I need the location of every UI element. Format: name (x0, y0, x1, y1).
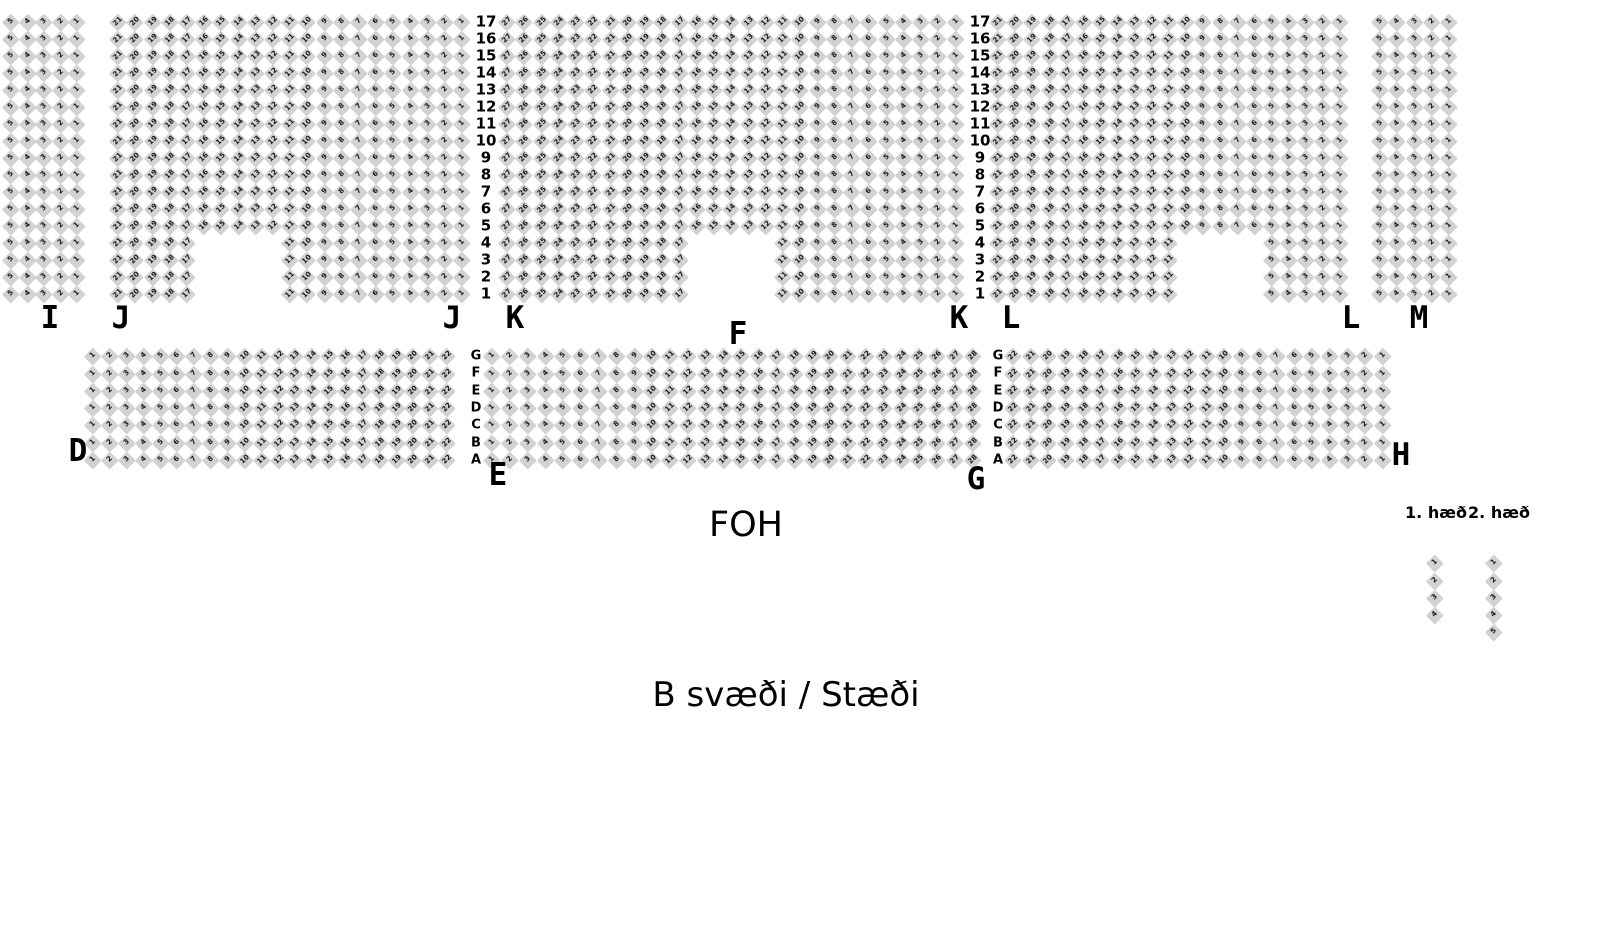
seat[interactable]: 6 (1246, 99, 1262, 115)
seat[interactable]: 1 (69, 65, 85, 81)
seat[interactable]: 7 (591, 434, 607, 450)
seat[interactable]: 22 (585, 133, 601, 149)
seat[interactable]: 14 (1146, 434, 1162, 450)
seat[interactable]: 13 (1127, 167, 1143, 183)
seat[interactable]: 6 (861, 116, 877, 132)
seat[interactable]: 16 (196, 218, 212, 234)
seat[interactable]: 9 (809, 48, 825, 64)
seat[interactable]: 6 (573, 365, 589, 381)
seat[interactable]: 8 (1251, 382, 1267, 398)
seat[interactable]: 12 (265, 133, 281, 149)
seat[interactable]: 19 (804, 348, 820, 364)
seat[interactable]: 11 (253, 434, 269, 450)
seat[interactable]: 17 (1058, 133, 1074, 149)
seat[interactable]: 5 (3, 252, 19, 268)
seat[interactable]: 9 (316, 133, 332, 149)
seat[interactable]: 3 (913, 167, 929, 183)
seat[interactable]: 22 (585, 201, 601, 217)
seat[interactable]: 7 (844, 99, 860, 115)
seat[interactable]: 18 (654, 65, 670, 81)
seat[interactable]: 16 (338, 382, 354, 398)
seat[interactable]: 7 (351, 184, 367, 200)
seat[interactable]: 5 (385, 150, 401, 166)
seat[interactable]: 5 (1372, 150, 1388, 166)
seat[interactable]: 21 (110, 14, 126, 30)
seat[interactable]: 15 (1128, 434, 1144, 450)
seat[interactable]: 15 (213, 184, 229, 200)
seat[interactable]: 3 (913, 99, 929, 115)
seat[interactable]: 2 (1423, 99, 1439, 115)
seat[interactable]: 21 (110, 48, 126, 64)
seat[interactable]: 7 (351, 252, 367, 268)
seat[interactable]: 11 (282, 269, 298, 285)
seat[interactable]: 12 (758, 201, 774, 217)
seat[interactable]: 13 (1127, 150, 1143, 166)
seat[interactable]: 17 (179, 48, 195, 64)
seat[interactable]: 5 (3, 286, 19, 302)
seat[interactable]: 22 (1005, 417, 1021, 433)
seat[interactable]: 18 (161, 167, 177, 183)
seat[interactable]: 20 (127, 133, 143, 149)
seat[interactable]: 5 (385, 133, 401, 149)
seat[interactable]: 5 (1263, 65, 1279, 81)
seat[interactable]: 12 (1144, 133, 1160, 149)
seat[interactable]: 27 (499, 65, 515, 81)
seat[interactable]: 13 (740, 150, 756, 166)
seat[interactable]: 17 (1058, 269, 1074, 285)
seat[interactable]: 1 (947, 184, 963, 200)
seat[interactable]: 19 (144, 48, 160, 64)
seat[interactable]: 19 (637, 150, 653, 166)
seat[interactable]: 11 (1161, 252, 1177, 268)
seat[interactable]: 19 (388, 382, 404, 398)
seat[interactable]: 2 (102, 434, 118, 450)
seat[interactable]: 2 (1423, 184, 1439, 200)
seat[interactable]: 11 (662, 348, 678, 364)
seat[interactable]: 5 (385, 201, 401, 217)
seat[interactable]: 14 (1109, 133, 1125, 149)
seat[interactable]: 26 (929, 434, 945, 450)
seat[interactable]: 24 (551, 201, 567, 217)
seat[interactable]: 15 (321, 434, 337, 450)
seat[interactable]: 5 (385, 65, 401, 81)
seat[interactable]: 19 (388, 400, 404, 416)
seat[interactable]: 20 (405, 348, 421, 364)
seat[interactable]: 10 (236, 382, 252, 398)
seat[interactable]: 16 (689, 82, 705, 98)
seat[interactable]: 4 (19, 252, 35, 268)
seat[interactable]: 5 (1263, 184, 1279, 200)
seat[interactable]: 4 (1389, 286, 1405, 302)
seat[interactable]: 3 (1406, 14, 1422, 30)
seat[interactable]: 5 (3, 82, 19, 98)
seat[interactable]: 15 (1092, 201, 1108, 217)
seat[interactable]: 20 (1040, 452, 1056, 468)
seat[interactable]: 14 (230, 201, 246, 217)
seat[interactable]: 3 (913, 65, 929, 81)
seat[interactable]: 8 (333, 48, 349, 64)
seat[interactable]: 3 (1298, 65, 1314, 81)
seat[interactable]: 18 (1041, 286, 1057, 302)
seat[interactable]: 5 (3, 48, 19, 64)
seat[interactable]: 23 (568, 133, 584, 149)
seat[interactable]: 1 (947, 48, 963, 64)
seat[interactable]: 24 (893, 382, 909, 398)
seat[interactable]: 2 (502, 365, 518, 381)
seat[interactable]: 17 (179, 31, 195, 47)
seat[interactable]: 17 (179, 65, 195, 81)
seat[interactable]: 2 (1423, 65, 1439, 81)
seat[interactable]: 12 (1144, 269, 1160, 285)
seat[interactable]: 20 (1040, 382, 1056, 398)
seat[interactable]: 7 (1229, 218, 1245, 234)
seat[interactable]: 21 (422, 417, 438, 433)
seat[interactable]: 12 (270, 417, 286, 433)
seat[interactable]: 27 (947, 365, 963, 381)
seat[interactable]: 14 (1146, 417, 1162, 433)
seat[interactable]: 23 (875, 452, 891, 468)
seat[interactable]: 1 (454, 48, 470, 64)
seat[interactable]: 26 (516, 184, 532, 200)
seat[interactable]: 24 (551, 269, 567, 285)
seat[interactable]: 4 (19, 235, 35, 251)
seat[interactable]: 19 (637, 133, 653, 149)
seat[interactable]: 25 (533, 235, 549, 251)
seat[interactable]: 10 (1216, 400, 1232, 416)
seat[interactable]: 10 (792, 116, 808, 132)
seat[interactable]: 14 (1146, 365, 1162, 381)
seat[interactable]: 23 (568, 82, 584, 98)
seat[interactable]: 3 (1298, 14, 1314, 30)
seat[interactable]: 4 (1322, 365, 1338, 381)
seat[interactable]: 2 (930, 14, 946, 30)
seat[interactable]: 2 (437, 31, 453, 47)
seat[interactable]: 1 (1441, 286, 1457, 302)
seat[interactable]: 2 (102, 382, 118, 398)
seat[interactable]: 6 (368, 269, 384, 285)
seat[interactable]: 2 (1315, 133, 1331, 149)
seat[interactable]: 18 (371, 434, 387, 450)
seat[interactable]: 1 (69, 48, 85, 64)
seat[interactable]: 14 (304, 382, 320, 398)
seat[interactable]: 17 (1093, 382, 1109, 398)
seat[interactable]: 1 (454, 235, 470, 251)
seat[interactable]: 7 (1229, 133, 1245, 149)
seat[interactable]: 14 (723, 116, 739, 132)
seat[interactable]: 28 (964, 417, 980, 433)
seat[interactable]: 9 (809, 116, 825, 132)
seat[interactable]: 15 (733, 400, 749, 416)
seat[interactable]: 14 (723, 31, 739, 47)
seat[interactable]: 1 (1441, 99, 1457, 115)
seat[interactable]: 6 (368, 150, 384, 166)
seat[interactable]: 2 (1315, 269, 1331, 285)
seat[interactable]: 10 (1178, 48, 1194, 64)
seat[interactable]: 20 (1007, 82, 1023, 98)
seat[interactable]: 10 (299, 31, 315, 47)
seat[interactable]: 20 (822, 452, 838, 468)
seat[interactable]: 21 (110, 99, 126, 115)
seat[interactable]: 25 (533, 286, 549, 302)
seat[interactable]: 1 (1332, 150, 1348, 166)
seat[interactable]: 4 (19, 65, 35, 81)
seat[interactable]: 2 (437, 150, 453, 166)
seat[interactable]: 6 (1246, 167, 1262, 183)
seat[interactable]: 17 (671, 235, 687, 251)
seat[interactable]: 1 (85, 382, 101, 398)
seat[interactable]: 5 (1263, 150, 1279, 166)
seat[interactable]: 19 (388, 434, 404, 450)
seat[interactable]: 15 (1092, 252, 1108, 268)
seat[interactable]: 7 (591, 417, 607, 433)
seat[interactable]: 3 (1298, 201, 1314, 217)
seat[interactable]: 1 (1332, 31, 1348, 47)
seat[interactable]: 19 (804, 382, 820, 398)
seat[interactable]: 9 (626, 417, 642, 433)
seat[interactable]: 6 (169, 452, 185, 468)
seat[interactable]: 7 (1269, 365, 1285, 381)
seat[interactable]: 10 (644, 365, 660, 381)
seat[interactable]: 16 (1075, 99, 1091, 115)
seat[interactable]: 11 (775, 65, 791, 81)
seat[interactable]: 21 (110, 116, 126, 132)
seat[interactable]: 4 (1322, 452, 1338, 468)
seat[interactable]: 4 (19, 201, 35, 217)
seat[interactable]: 11 (662, 452, 678, 468)
seat[interactable]: 20 (1007, 48, 1023, 64)
seat[interactable]: 4 (402, 82, 418, 98)
seat[interactable]: 4 (19, 286, 35, 302)
seat[interactable]: 9 (316, 14, 332, 30)
seat[interactable]: 20 (405, 382, 421, 398)
seat[interactable]: 9 (1234, 452, 1250, 468)
seat[interactable]: 9 (1195, 184, 1211, 200)
seat[interactable]: 20 (822, 382, 838, 398)
seat[interactable]: 14 (304, 348, 320, 364)
seat[interactable]: 18 (161, 218, 177, 234)
seat[interactable]: 5 (1304, 365, 1320, 381)
seat[interactable]: 8 (333, 116, 349, 132)
seat[interactable]: 5 (1263, 48, 1279, 64)
seat[interactable]: 23 (568, 252, 584, 268)
seat[interactable]: 14 (304, 434, 320, 450)
seat[interactable]: 11 (775, 269, 791, 285)
seat[interactable]: 15 (733, 452, 749, 468)
seat[interactable]: 19 (1024, 48, 1040, 64)
seat[interactable]: 10 (792, 167, 808, 183)
seat[interactable]: 18 (161, 14, 177, 30)
seat[interactable]: 9 (626, 382, 642, 398)
seat[interactable]: 15 (1092, 14, 1108, 30)
seat[interactable]: 5 (555, 400, 571, 416)
seat[interactable]: 6 (1286, 382, 1302, 398)
seat[interactable]: 27 (499, 82, 515, 98)
seat[interactable]: 17 (1058, 184, 1074, 200)
seat[interactable]: 17 (671, 116, 687, 132)
seat[interactable]: 13 (1127, 65, 1143, 81)
seat[interactable]: 13 (740, 133, 756, 149)
seat[interactable]: 22 (585, 99, 601, 115)
seat[interactable]: 4 (896, 116, 912, 132)
seat[interactable]: 10 (1216, 417, 1232, 433)
seat[interactable]: 5 (385, 286, 401, 302)
seat[interactable]: 14 (1109, 116, 1125, 132)
seat[interactable]: 22 (439, 348, 455, 364)
seat[interactable]: 3 (419, 252, 435, 268)
seat[interactable]: 10 (1178, 82, 1194, 98)
seat[interactable]: 9 (316, 48, 332, 64)
seat[interactable]: 1 (947, 218, 963, 234)
seat[interactable]: 5 (1263, 99, 1279, 115)
seat[interactable]: 1 (947, 235, 963, 251)
seat[interactable]: 5 (3, 218, 19, 234)
seat[interactable]: 14 (723, 167, 739, 183)
seat[interactable]: 4 (537, 382, 553, 398)
seat[interactable]: 12 (1181, 348, 1197, 364)
seat[interactable]: 11 (1161, 31, 1177, 47)
seat[interactable]: 21 (990, 184, 1006, 200)
seat[interactable]: 6 (861, 184, 877, 200)
seat[interactable]: 8 (1251, 452, 1267, 468)
seat[interactable]: 18 (161, 269, 177, 285)
seat[interactable]: 14 (723, 201, 739, 217)
seat[interactable]: 23 (875, 365, 891, 381)
seat[interactable]: 21 (840, 452, 856, 468)
seat[interactable]: 1 (947, 201, 963, 217)
seat[interactable]: 9 (809, 150, 825, 166)
seat[interactable]: 11 (282, 201, 298, 217)
seat[interactable]: 9 (626, 400, 642, 416)
seat[interactable]: 8 (333, 99, 349, 115)
seat[interactable]: 12 (680, 417, 696, 433)
seat[interactable]: 7 (591, 382, 607, 398)
seat[interactable]: 3 (419, 133, 435, 149)
seat[interactable]: 13 (697, 452, 713, 468)
seat[interactable]: 5 (1263, 286, 1279, 302)
seat[interactable]: 1 (454, 31, 470, 47)
seat[interactable]: 5 (152, 417, 168, 433)
seat[interactable]: 2 (102, 348, 118, 364)
seat[interactable]: 1 (85, 400, 101, 416)
seat[interactable]: 22 (585, 82, 601, 98)
seat[interactable]: 2 (102, 417, 118, 433)
seat[interactable]: 20 (620, 286, 636, 302)
seat[interactable]: 20 (620, 252, 636, 268)
seat[interactable]: 3 (36, 252, 52, 268)
seat[interactable]: 9 (1234, 434, 1250, 450)
seat[interactable]: 18 (654, 286, 670, 302)
seat[interactable]: 4 (1280, 201, 1296, 217)
seat[interactable]: 20 (127, 116, 143, 132)
seat[interactable]: 11 (1198, 452, 1214, 468)
seat[interactable]: 2 (1315, 218, 1331, 234)
seat[interactable]: 15 (733, 417, 749, 433)
seat[interactable]: 1 (69, 116, 85, 132)
seat[interactable]: 4 (135, 382, 151, 398)
seat[interactable]: 10 (792, 201, 808, 217)
seat[interactable]: 12 (270, 434, 286, 450)
seat[interactable]: 24 (551, 48, 567, 64)
seat[interactable]: 13 (697, 382, 713, 398)
seat[interactable]: 21 (110, 167, 126, 183)
seat[interactable]: 5 (1372, 286, 1388, 302)
seat[interactable]: 1 (1441, 269, 1457, 285)
seat[interactable]: 20 (405, 400, 421, 416)
seat[interactable]: 4 (1280, 150, 1296, 166)
seat[interactable]: 2 (1315, 252, 1331, 268)
seat[interactable]: 3 (913, 133, 929, 149)
seat[interactable]: 15 (706, 150, 722, 166)
seat[interactable]: 12 (270, 452, 286, 468)
seat[interactable]: 6 (368, 31, 384, 47)
seat[interactable]: 2 (502, 348, 518, 364)
seat[interactable]: 19 (804, 365, 820, 381)
seat[interactable]: 20 (620, 235, 636, 251)
seat[interactable]: 8 (827, 201, 843, 217)
seat[interactable]: 6 (1246, 201, 1262, 217)
seat[interactable]: 20 (822, 417, 838, 433)
seat[interactable]: 11 (1161, 184, 1177, 200)
seat[interactable]: 24 (551, 14, 567, 30)
seat[interactable]: 7 (351, 99, 367, 115)
seat[interactable]: 21 (990, 269, 1006, 285)
seat[interactable]: 13 (740, 48, 756, 64)
seat[interactable]: 13 (247, 48, 263, 64)
seat[interactable]: 4 (1322, 348, 1338, 364)
seat[interactable]: 14 (715, 417, 731, 433)
seat[interactable]: 10 (1178, 218, 1194, 234)
seat[interactable]: 6 (368, 116, 384, 132)
seat[interactable]: 4 (19, 82, 35, 98)
seat[interactable]: 14 (723, 14, 739, 30)
seat[interactable]: 15 (1128, 382, 1144, 398)
seat[interactable]: 3 (1406, 184, 1422, 200)
seat[interactable]: 1 (1441, 235, 1457, 251)
seat[interactable]: 2 (437, 201, 453, 217)
seat[interactable]: 14 (715, 365, 731, 381)
seat[interactable]: 3 (1406, 218, 1422, 234)
seat[interactable]: 20 (822, 348, 838, 364)
seat[interactable]: 8 (1251, 417, 1267, 433)
seat[interactable]: 14 (230, 116, 246, 132)
seat[interactable]: 10 (1178, 14, 1194, 30)
seat[interactable]: 4 (896, 133, 912, 149)
seat[interactable]: 19 (1058, 348, 1074, 364)
seat[interactable]: 6 (1286, 417, 1302, 433)
seat[interactable]: 20 (1007, 31, 1023, 47)
seat[interactable]: 17 (671, 286, 687, 302)
seat[interactable]: 19 (388, 452, 404, 468)
seat[interactable]: 2 (52, 65, 68, 81)
seat[interactable]: 6 (1246, 116, 1262, 132)
seat[interactable]: 1 (454, 99, 470, 115)
seat[interactable]: 23 (568, 286, 584, 302)
seat[interactable]: 14 (230, 150, 246, 166)
seat[interactable]: 13 (247, 133, 263, 149)
seat[interactable]: 14 (723, 65, 739, 81)
seat[interactable]: 6 (169, 400, 185, 416)
seat[interactable]: 13 (247, 82, 263, 98)
seat[interactable]: 10 (1178, 184, 1194, 200)
seat[interactable]: 15 (706, 14, 722, 30)
seat[interactable]: 14 (1109, 235, 1125, 251)
seat[interactable]: 21 (602, 286, 618, 302)
seat[interactable]: 20 (620, 133, 636, 149)
seat[interactable]: 13 (287, 434, 303, 450)
seat[interactable]: 11 (662, 417, 678, 433)
seat[interactable]: 16 (1075, 201, 1091, 217)
seat[interactable]: 20 (127, 82, 143, 98)
